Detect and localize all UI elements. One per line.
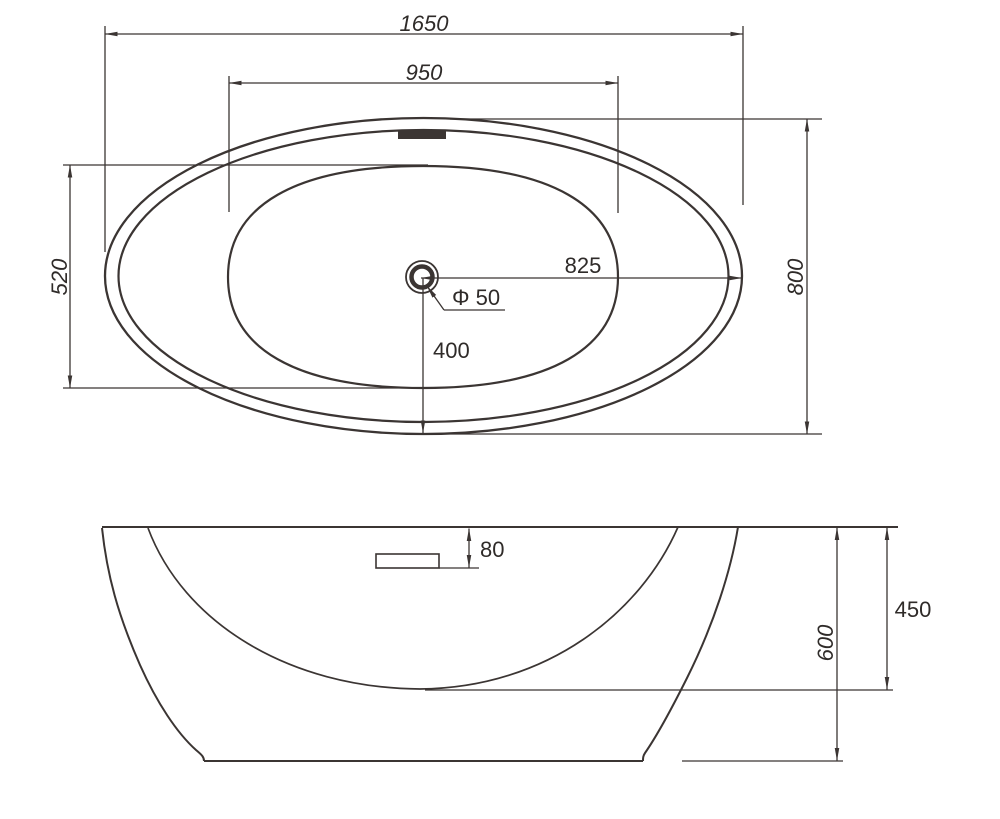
overflow-slot-top-view xyxy=(398,130,446,139)
dim-label-80: 80 xyxy=(480,537,504,562)
top-view: 1650 950 520 800 825 xyxy=(47,11,822,434)
dim-overflow-drop: 80 xyxy=(469,529,504,568)
dim-inner-depth: 450 xyxy=(887,528,931,690)
dim-label-825: 825 xyxy=(565,253,602,278)
technical-drawing-page: 1650 950 520 800 825 xyxy=(0,0,1000,819)
tub-right-profile xyxy=(643,527,738,761)
dim-label-600: 600 xyxy=(813,624,838,661)
side-view: 80 600 450 xyxy=(102,527,931,761)
dim-drain-to-right: 825 xyxy=(421,253,742,278)
drain-diameter-callout: Φ 50 xyxy=(427,285,505,310)
tub-left-profile xyxy=(102,528,204,761)
overflow-slot-side-view xyxy=(376,554,439,568)
inner-bowl-curve xyxy=(148,527,678,689)
drain-ring xyxy=(412,267,433,288)
dim-overall-height: 600 xyxy=(813,528,838,761)
bathtub-dimension-drawing: 1650 950 520 800 825 xyxy=(0,0,1000,819)
dim-label-450: 450 xyxy=(895,597,932,622)
dim-label-drain-diameter: Φ 50 xyxy=(452,285,500,310)
dim-label-520: 520 xyxy=(47,258,72,295)
dim-label-1650: 1650 xyxy=(400,11,450,36)
dim-label-800: 800 xyxy=(783,258,808,295)
dim-label-400: 400 xyxy=(433,338,470,363)
leader-line xyxy=(427,286,444,310)
dim-label-950: 950 xyxy=(406,60,443,85)
